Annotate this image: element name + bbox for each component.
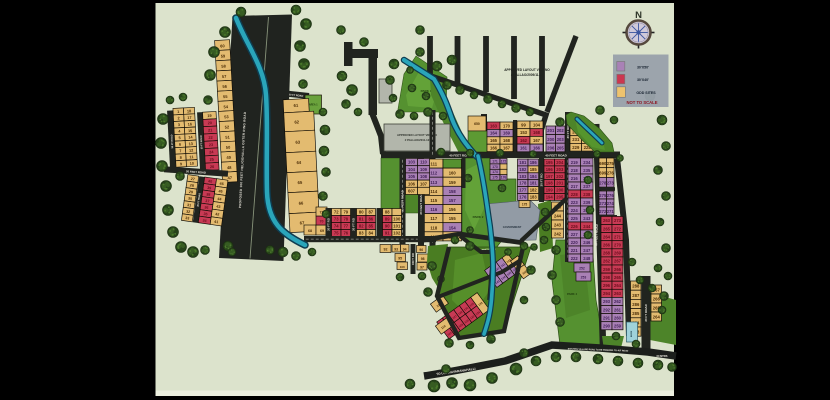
- svg-text:158: 158: [449, 189, 457, 194]
- svg-text:28: 28: [190, 183, 195, 188]
- svg-text:229: 229: [572, 145, 580, 150]
- svg-text:40 FEET ROAD: 40 FEET ROAD: [545, 154, 567, 158]
- svg-text:7: 7: [179, 149, 181, 153]
- svg-text:102: 102: [393, 231, 401, 236]
- svg-text:259: 259: [603, 267, 611, 272]
- svg-text:219: 219: [571, 160, 579, 165]
- svg-text:294: 294: [603, 291, 611, 296]
- svg-text:112: 112: [430, 171, 437, 176]
- svg-text:88: 88: [385, 210, 390, 215]
- svg-text:248: 248: [583, 256, 591, 261]
- svg-text:273: 273: [614, 218, 622, 223]
- svg-text:181: 181: [530, 181, 538, 186]
- svg-text:N: N: [635, 10, 642, 21]
- svg-text:160: 160: [449, 171, 457, 176]
- svg-text:108: 108: [420, 174, 428, 179]
- svg-text:272: 272: [614, 226, 622, 231]
- svg-text:AREA 1: AREA 1: [309, 104, 318, 107]
- svg-text:6: 6: [179, 143, 181, 147]
- svg-text:166: 166: [490, 146, 498, 151]
- svg-text:35: 35: [203, 212, 208, 217]
- svg-text:205: 205: [557, 145, 565, 150]
- svg-text:BORE: BORE: [631, 330, 633, 337]
- svg-text:16: 16: [188, 122, 192, 126]
- svg-text:161: 161: [520, 146, 528, 151]
- svg-text:252: 252: [579, 267, 585, 271]
- svg-text:74: 74: [334, 224, 339, 229]
- svg-text:11: 11: [189, 155, 193, 159]
- svg-text:30 FT RD: 30 FT RD: [327, 217, 331, 231]
- svg-text:183: 183: [519, 174, 527, 179]
- svg-text:33: 33: [185, 216, 190, 221]
- svg-text:223: 223: [571, 200, 579, 205]
- svg-text:104: 104: [533, 123, 541, 128]
- svg-text:286: 286: [632, 302, 640, 307]
- svg-text:186: 186: [530, 160, 538, 165]
- svg-text:182: 182: [519, 167, 527, 172]
- svg-text:270: 270: [614, 243, 622, 248]
- svg-text:ODD SITES: ODD SITES: [636, 91, 656, 95]
- svg-text:42: 42: [215, 212, 220, 217]
- svg-text:117: 117: [430, 216, 437, 221]
- svg-text:276: 276: [607, 193, 615, 198]
- svg-text:197: 197: [546, 174, 554, 179]
- svg-text:NOT TO SCALE: NOT TO SCALE: [626, 100, 657, 105]
- svg-text:30'X40': 30'X40': [637, 78, 649, 82]
- svg-text:30 FT RD: 30 FT RD: [540, 173, 544, 187]
- svg-text:107: 107: [420, 181, 428, 186]
- svg-text:10: 10: [190, 162, 194, 166]
- svg-text:269: 269: [614, 251, 622, 256]
- svg-text:86: 86: [368, 217, 373, 222]
- svg-text:30 FT ROAD: 30 FT ROAD: [644, 303, 648, 321]
- svg-text:224: 224: [571, 208, 579, 213]
- svg-text:266: 266: [653, 297, 661, 302]
- svg-text:69: 69: [320, 229, 324, 233]
- svg-text:202: 202: [556, 174, 564, 179]
- svg-text:200: 200: [556, 188, 564, 193]
- svg-text:176: 176: [501, 176, 507, 180]
- svg-text:264: 264: [653, 315, 661, 320]
- svg-text:200: 200: [547, 137, 555, 142]
- svg-text:83: 83: [359, 231, 364, 236]
- svg-text:115: 115: [430, 198, 437, 203]
- svg-text:90: 90: [385, 224, 390, 229]
- svg-text:93: 93: [394, 248, 398, 252]
- svg-text:97: 97: [420, 266, 424, 270]
- svg-text:30 FEET ROAD: 30 FEET ROAD: [419, 192, 423, 214]
- svg-text:247: 247: [583, 248, 591, 253]
- svg-text:76: 76: [343, 231, 348, 236]
- svg-text:169: 169: [503, 131, 511, 136]
- svg-text:237: 237: [583, 184, 591, 189]
- svg-text:275: 275: [607, 161, 615, 166]
- svg-text:72: 72: [334, 210, 339, 215]
- svg-text:291: 291: [603, 315, 611, 320]
- svg-text:261: 261: [614, 307, 622, 312]
- svg-text:253: 253: [581, 276, 587, 280]
- svg-text:116: 116: [430, 207, 437, 212]
- svg-text:82: 82: [359, 224, 364, 229]
- svg-text:182: 182: [530, 188, 538, 193]
- svg-text:293: 293: [603, 299, 611, 304]
- svg-text:32: 32: [186, 210, 191, 215]
- svg-text:201: 201: [547, 128, 555, 133]
- svg-text:167: 167: [533, 138, 541, 143]
- svg-text:40: 40: [208, 179, 213, 184]
- svg-text:87: 87: [368, 210, 373, 215]
- svg-text:84: 84: [368, 231, 373, 236]
- svg-text:262: 262: [603, 259, 611, 264]
- svg-text:170: 170: [503, 123, 511, 128]
- svg-text:99: 99: [521, 123, 526, 128]
- svg-text:109: 109: [420, 167, 428, 172]
- svg-text:243: 243: [583, 216, 591, 221]
- svg-text:30 FT RD: 30 FT RD: [352, 217, 356, 231]
- svg-text:68: 68: [308, 229, 312, 233]
- svg-text:37: 37: [205, 199, 210, 204]
- svg-text:262: 262: [614, 299, 622, 304]
- svg-text:285: 285: [632, 311, 640, 316]
- svg-text:75: 75: [334, 231, 339, 236]
- svg-text:156: 156: [449, 207, 457, 212]
- svg-text:607: 607: [408, 189, 416, 194]
- svg-text:20: 20: [208, 120, 213, 125]
- svg-text:41: 41: [214, 220, 219, 225]
- svg-text:225: 225: [571, 216, 579, 221]
- svg-text:222: 222: [571, 256, 579, 261]
- svg-text:264: 264: [603, 234, 611, 239]
- svg-text:110: 110: [420, 160, 427, 165]
- svg-text:175: 175: [522, 203, 528, 207]
- svg-text:171: 171: [492, 159, 498, 163]
- svg-text:91: 91: [385, 231, 390, 236]
- svg-text:39: 39: [207, 186, 212, 191]
- svg-text:287: 287: [632, 293, 640, 298]
- svg-text:# PALLAO/2009/11-12: # PALLAO/2009/11-12: [511, 73, 544, 77]
- svg-text:244: 244: [583, 224, 591, 229]
- svg-text:184: 184: [530, 174, 538, 179]
- svg-text:18: 18: [187, 109, 191, 113]
- svg-text:228: 228: [571, 192, 579, 197]
- svg-text:77: 77: [343, 224, 348, 229]
- svg-text:173: 173: [492, 165, 498, 169]
- svg-text:9: 9: [180, 162, 182, 166]
- svg-text:98: 98: [421, 257, 425, 261]
- svg-text:194: 194: [546, 195, 554, 200]
- svg-text:183: 183: [530, 195, 538, 200]
- svg-text:178: 178: [519, 181, 527, 186]
- svg-text:104: 104: [408, 167, 416, 172]
- svg-text:217: 217: [571, 184, 579, 189]
- svg-text:106: 106: [408, 181, 416, 186]
- svg-text:94: 94: [403, 248, 407, 252]
- svg-text:79: 79: [343, 210, 348, 215]
- svg-text:264: 264: [614, 283, 622, 288]
- svg-text:73: 73: [334, 217, 339, 222]
- svg-text:43: 43: [216, 204, 221, 209]
- svg-text:221: 221: [571, 248, 579, 253]
- svg-text:227: 227: [571, 232, 579, 237]
- svg-text:163: 163: [490, 123, 498, 128]
- svg-text:259: 259: [614, 324, 622, 329]
- svg-text:203: 203: [556, 167, 564, 172]
- svg-text:296: 296: [603, 283, 611, 288]
- svg-text:168: 168: [503, 138, 511, 143]
- svg-text:92: 92: [384, 248, 388, 252]
- svg-text:100: 100: [400, 265, 405, 269]
- svg-text:118: 118: [430, 225, 437, 230]
- svg-text:12: 12: [189, 149, 193, 153]
- svg-text:177: 177: [519, 188, 527, 193]
- svg-text:103: 103: [408, 160, 416, 165]
- svg-text:216: 216: [571, 176, 579, 181]
- svg-text:243: 243: [554, 223, 562, 228]
- svg-text:8: 8: [180, 156, 182, 160]
- svg-text:81: 81: [359, 217, 364, 222]
- svg-text:78: 78: [343, 217, 348, 222]
- svg-text:298: 298: [603, 275, 611, 280]
- svg-text:176: 176: [519, 195, 527, 200]
- svg-text:70: 70: [320, 220, 324, 224]
- svg-text:36: 36: [204, 205, 209, 210]
- svg-text:204: 204: [556, 160, 564, 165]
- svg-text:PARK 2: PARK 2: [473, 215, 484, 219]
- svg-text:APPROVED LAYOUT VIDE NO: APPROVED LAYOUT VIDE NO: [504, 68, 550, 72]
- svg-text:162: 162: [520, 138, 528, 143]
- svg-text:60 MTRS: 60 MTRS: [657, 354, 668, 358]
- svg-text:29: 29: [189, 190, 194, 195]
- svg-text:114: 114: [430, 189, 437, 194]
- svg-text:185: 185: [530, 167, 538, 172]
- svg-text:174: 174: [492, 170, 498, 174]
- svg-text:242: 242: [554, 232, 562, 237]
- svg-text:164: 164: [490, 131, 498, 136]
- svg-text:290: 290: [603, 324, 611, 329]
- svg-text:PARK 4: PARK 4: [567, 292, 577, 296]
- svg-text:292: 292: [603, 307, 611, 312]
- svg-text:271: 271: [607, 209, 615, 214]
- svg-text:226: 226: [571, 224, 579, 229]
- svg-text:38: 38: [206, 192, 211, 197]
- svg-text:45: 45: [218, 189, 223, 194]
- svg-text:30FT RD: 30FT RD: [411, 252, 415, 265]
- svg-text:13: 13: [189, 142, 193, 146]
- svg-text:89: 89: [385, 217, 390, 222]
- svg-text:3: 3: [178, 123, 180, 127]
- svg-text:30'X50': 30'X50': [637, 66, 649, 70]
- svg-text:276: 276: [607, 171, 615, 176]
- svg-text:263: 263: [614, 291, 622, 296]
- svg-text:246: 246: [583, 240, 591, 245]
- svg-text:260: 260: [614, 315, 622, 320]
- svg-text:650: 650: [474, 122, 480, 126]
- svg-text:266: 266: [614, 267, 622, 272]
- svg-text:15: 15: [188, 129, 192, 133]
- svg-text:30 FEET ROAD: 30 FEET ROAD: [594, 223, 599, 245]
- svg-text:234: 234: [583, 160, 591, 165]
- svg-text:265: 265: [603, 226, 611, 231]
- svg-text:199: 199: [546, 188, 554, 193]
- svg-text:2: 2: [178, 116, 180, 120]
- svg-text:238: 238: [583, 192, 591, 197]
- svg-text:30: 30: [188, 196, 193, 201]
- svg-text:268: 268: [603, 251, 611, 256]
- svg-text:239: 239: [583, 200, 591, 205]
- svg-text:266: 266: [603, 243, 611, 248]
- svg-text:244: 244: [554, 214, 562, 219]
- svg-text:165: 165: [490, 138, 498, 143]
- svg-text:198: 198: [546, 181, 554, 186]
- svg-text:157: 157: [449, 198, 457, 203]
- svg-text:153: 153: [520, 130, 528, 135]
- svg-text:218: 218: [571, 168, 579, 173]
- svg-text:113: 113: [430, 180, 437, 185]
- svg-text:168: 168: [533, 130, 541, 135]
- svg-text:100: 100: [393, 217, 401, 222]
- svg-text:205: 205: [556, 195, 564, 200]
- svg-text:85: 85: [368, 224, 373, 229]
- svg-text:181: 181: [519, 160, 527, 165]
- svg-text:101: 101: [393, 224, 401, 229]
- svg-text:# PALLAO/2011-12: # PALLAO/2011-12: [405, 138, 430, 142]
- svg-text:274: 274: [607, 201, 615, 206]
- svg-text:5: 5: [179, 136, 181, 140]
- svg-text:154: 154: [449, 225, 457, 230]
- svg-text:95: 95: [398, 257, 402, 261]
- svg-text:220: 220: [571, 240, 579, 245]
- svg-text:288: 288: [632, 284, 640, 289]
- svg-text:31: 31: [187, 203, 192, 208]
- svg-text:166: 166: [533, 146, 541, 151]
- svg-text:206: 206: [547, 145, 555, 150]
- svg-text:273: 273: [607, 180, 615, 185]
- svg-text:111: 111: [431, 162, 438, 167]
- svg-text:267: 267: [614, 259, 622, 264]
- svg-text:1: 1: [177, 110, 179, 114]
- svg-text:GOVERNMENT: GOVERNMENT: [503, 225, 522, 229]
- svg-text:167: 167: [503, 146, 511, 151]
- svg-text:203: 203: [557, 137, 565, 142]
- svg-text:201: 201: [556, 181, 564, 186]
- svg-text:265: 265: [614, 275, 622, 280]
- svg-text:155: 155: [449, 216, 457, 221]
- svg-text:105: 105: [408, 174, 416, 179]
- svg-text:172: 172: [501, 159, 507, 163]
- svg-text:159: 159: [449, 180, 457, 185]
- svg-text:271: 271: [614, 234, 622, 239]
- svg-text:202: 202: [557, 128, 565, 133]
- svg-text:231: 231: [572, 137, 580, 142]
- svg-text:96: 96: [419, 248, 423, 252]
- svg-text:196: 196: [546, 167, 554, 172]
- svg-text:263: 263: [603, 218, 611, 223]
- svg-text:80: 80: [359, 210, 364, 215]
- svg-text:46: 46: [219, 182, 224, 187]
- svg-text:175: 175: [492, 176, 498, 180]
- svg-text:235: 235: [583, 168, 591, 173]
- svg-text:27: 27: [190, 177, 195, 182]
- svg-text:195: 195: [546, 160, 554, 165]
- svg-text:17: 17: [187, 116, 191, 120]
